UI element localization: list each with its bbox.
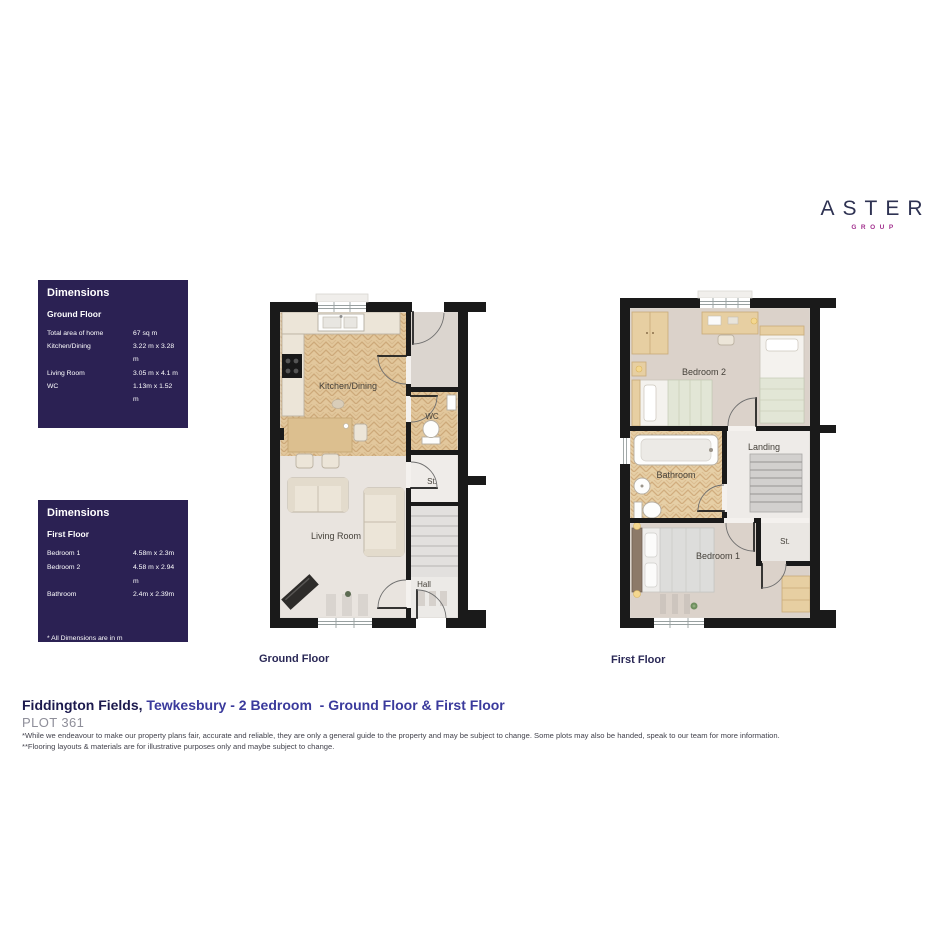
- page-title: Fiddington Fields, Tewkesbury - 2 Bedroo…: [22, 697, 505, 713]
- desk-chair: [718, 335, 734, 345]
- stairs: [750, 454, 802, 512]
- dimension-value: 3.05 m x 4.1 m: [133, 367, 179, 380]
- hob: [282, 354, 302, 378]
- dimension-label: Total area of home: [47, 327, 133, 340]
- sofa: [288, 478, 348, 512]
- page-title-location: Fiddington Fields,: [22, 697, 143, 713]
- room-label-bedroom1: Bedroom 1: [696, 551, 740, 561]
- sink: [634, 478, 650, 494]
- sofa: [364, 488, 404, 556]
- brochure-page: ASTER GROUP Dimensions Ground Floor Tota…: [0, 0, 945, 945]
- lamp: [634, 591, 641, 598]
- disclaimer-line: *While we endeavour to make our property…: [22, 731, 927, 742]
- dining-chair: [354, 424, 367, 441]
- single-bed: [760, 326, 804, 423]
- lamp: [751, 318, 757, 324]
- dimension-row: Bedroom 2 4.58 m x 2.94 m: [47, 561, 179, 589]
- room-label-living-room: Living Room: [311, 531, 361, 541]
- aster-group-logo: ASTER GROUP: [812, 197, 932, 231]
- window: [318, 618, 372, 628]
- dimension-value: 4.58 m x 2.94 m: [133, 561, 179, 589]
- note: * All Dimensions are in m: [47, 432, 179, 445]
- toilet: [422, 421, 440, 445]
- doormat: [418, 591, 447, 606]
- lamp: [634, 523, 641, 530]
- first-floor-plan: Bedroom 2 Bathroom Landing St. Bedroom 1: [610, 288, 846, 638]
- dimension-label: Kitchen/Dining: [47, 340, 133, 366]
- toilet: [634, 502, 661, 519]
- rug: [326, 591, 368, 616]
- window: [620, 438, 630, 464]
- first-floor-caption: First Floor: [611, 654, 665, 666]
- dimension-row: Living Room 3.05 m x 4.1 m: [47, 367, 179, 380]
- entry-door-opening: [412, 302, 444, 312]
- ground-floor-plan: Kitchen/Dining WC St. Living Room Hall: [260, 292, 492, 638]
- dimension-label: Bedroom 1: [47, 547, 133, 561]
- note: ** All measurements are approximate: [47, 445, 179, 458]
- note: ** All measurements are approximate: [47, 645, 179, 658]
- panel-subtitle: Ground Floor: [47, 309, 179, 319]
- room-label-hall: Hall: [417, 580, 431, 589]
- room-label-landing: Landing: [748, 442, 780, 452]
- dining-chair: [322, 454, 339, 468]
- dimension-row: Bathroom 2.4m x 2.39m: [47, 588, 179, 602]
- dimension-label: WC: [47, 380, 133, 406]
- disclaimer-line: **Flooring layouts & materials are for i…: [22, 742, 927, 753]
- dimension-label: Bathroom: [47, 588, 133, 602]
- room-label-bedroom2: Bedroom 2: [682, 367, 726, 377]
- dimension-row: Kitchen/Dining 3.22 m x 3.28 m: [47, 340, 179, 366]
- room-label-storage: St.: [780, 537, 790, 546]
- dining-chair: [296, 454, 313, 468]
- panel-notes: * All Dimensions are in m ** All measure…: [47, 632, 179, 658]
- room-label-storage: St.: [427, 477, 437, 486]
- logo-subtitle: GROUP: [817, 224, 932, 231]
- dimension-rows: Total area of home 67 sq m Kitchen/Dinin…: [47, 327, 179, 406]
- dimension-row: Bedroom 1 4.58m x 2.3m: [47, 547, 179, 561]
- panel-subtitle: First Floor: [47, 529, 179, 539]
- dimension-label: Living Room: [47, 367, 133, 380]
- dimensions-panel-first-floor: Dimensions First Floor Bedroom 1 4.58m x…: [38, 500, 188, 642]
- dimensions-panel-ground-floor: Dimensions Ground Floor Total area of ho…: [38, 280, 188, 428]
- room-label-wc: WC: [425, 412, 439, 421]
- dimension-row: Total area of home 67 sq m: [47, 327, 179, 340]
- window: [654, 618, 704, 628]
- single-bed: [632, 380, 712, 426]
- window: [698, 291, 752, 308]
- dimension-value: 4.58m x 2.3m: [133, 547, 179, 561]
- dimension-rows: Bedroom 1 4.58m x 2.3m Bedroom 2 4.58 m …: [47, 547, 179, 602]
- panel-notes: * All Dimensions are in m ** All measure…: [47, 432, 179, 458]
- dimension-label: Bedroom 2: [47, 561, 133, 589]
- room-label-bathroom: Bathroom: [656, 470, 695, 480]
- basin: [447, 395, 456, 410]
- disclaimer: *While we endeavour to make our property…: [22, 731, 927, 752]
- dimension-row: WC 1.13m x 1.52 m: [47, 380, 179, 406]
- bathtub: [634, 435, 718, 465]
- dimension-value: 1.13m x 1.52 m: [133, 380, 179, 406]
- note: * All Dimensions are in m: [47, 632, 179, 645]
- wardrobe: [632, 312, 668, 354]
- page-title-description: Tewkesbury - 2 Bedroom - Ground Floor & …: [143, 697, 505, 713]
- drawer-unit: [782, 576, 810, 612]
- logo-name: ASTER: [819, 197, 932, 221]
- lamp: [636, 366, 642, 372]
- dimension-value: 3.22 m x 3.28 m: [133, 340, 179, 366]
- dimension-value: 67 sq m: [133, 327, 179, 340]
- window: [316, 294, 368, 312]
- ground-floor-caption: Ground Floor: [259, 653, 329, 665]
- front-door-opening: [416, 618, 446, 628]
- room-label-kitchen-dining: Kitchen/Dining: [319, 381, 377, 391]
- dimension-value: 2.4m x 2.39m: [133, 588, 179, 602]
- panel-title: Dimensions: [47, 507, 179, 519]
- panel-title: Dimensions: [47, 287, 179, 299]
- stool: [332, 400, 344, 409]
- plot-number: PLOT 361: [22, 715, 84, 730]
